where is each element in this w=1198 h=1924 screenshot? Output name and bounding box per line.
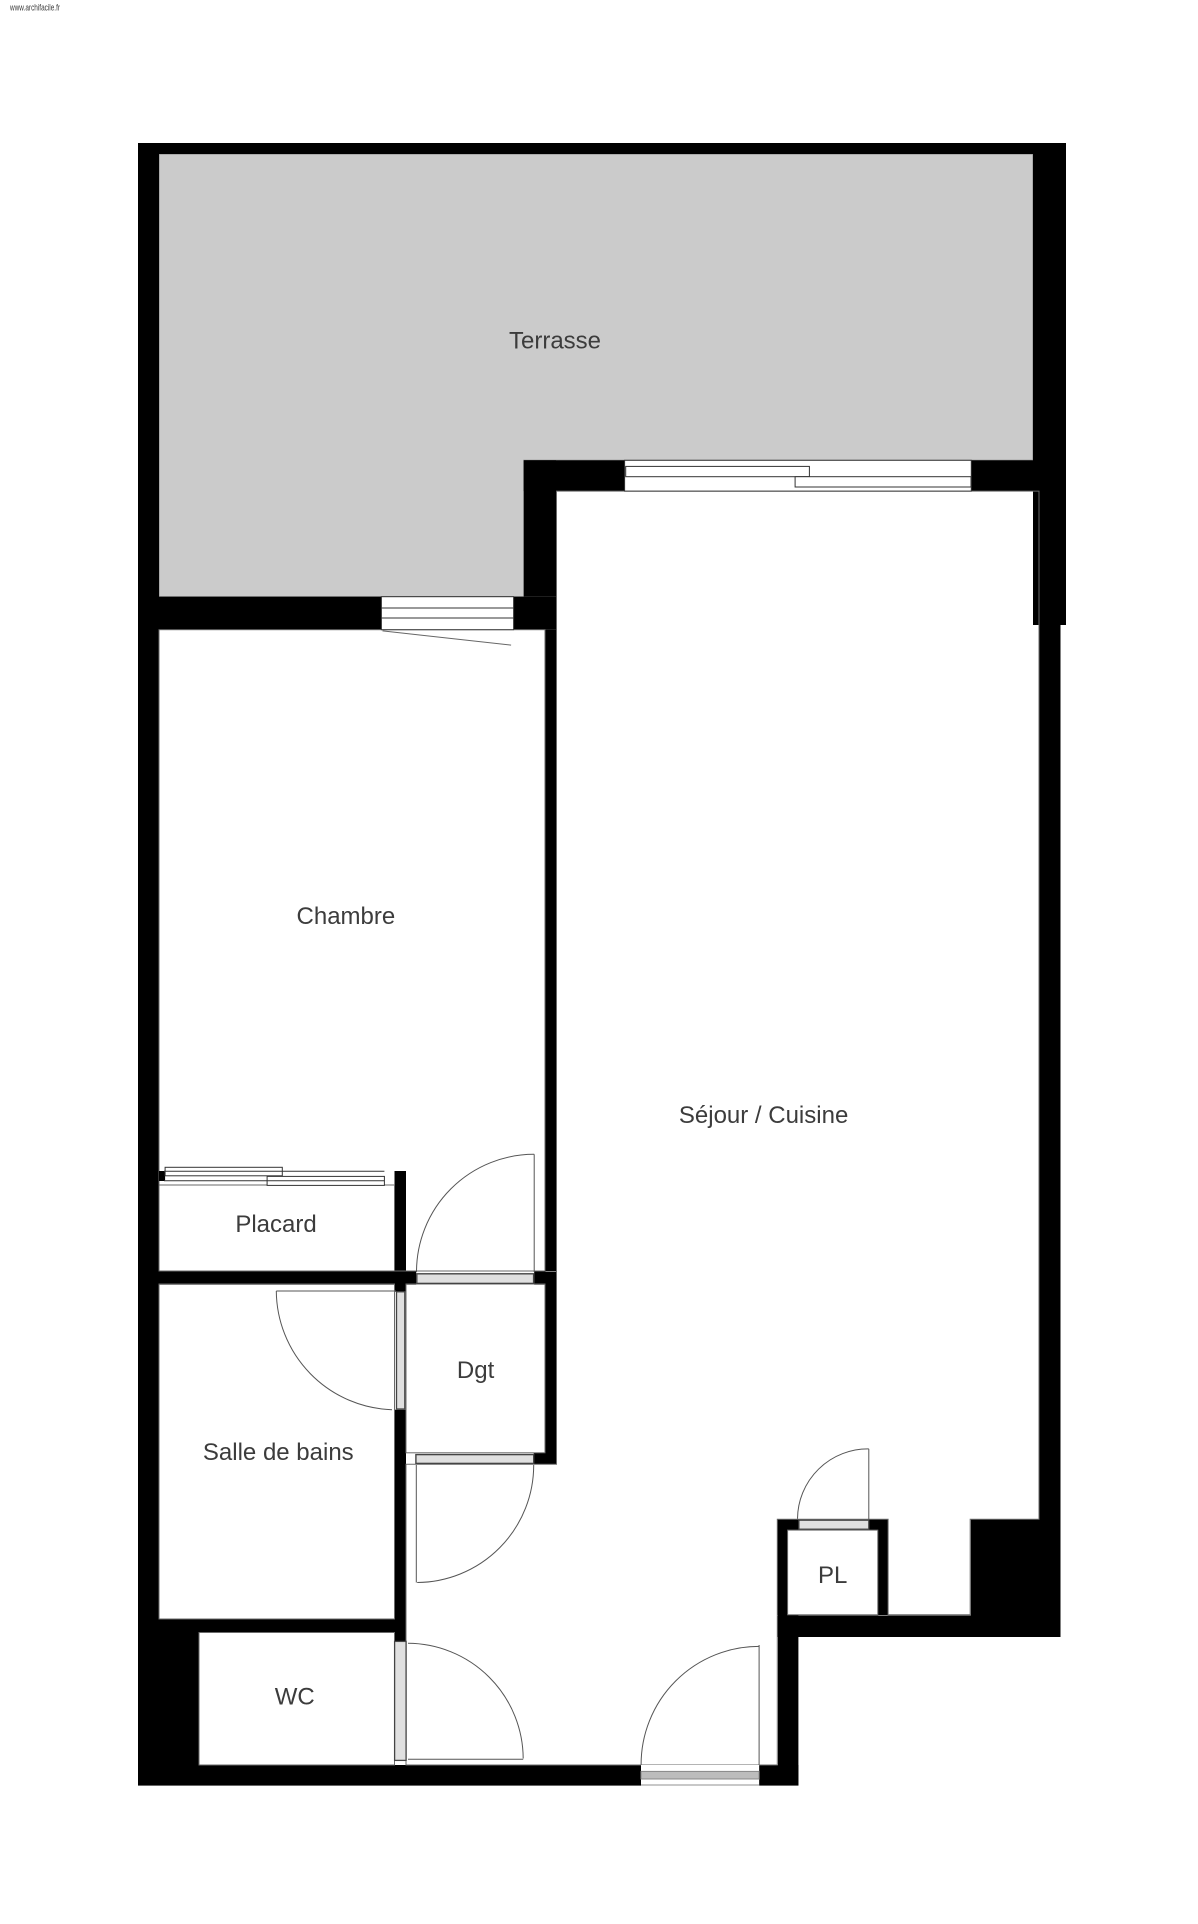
- svg-text:Placard: Placard: [235, 1211, 316, 1238]
- svg-text:www.archifacile.fr: www.archifacile.fr: [9, 3, 60, 13]
- svg-text:Séjour / Cuisine: Séjour / Cuisine: [679, 1102, 848, 1129]
- svg-text:WC: WC: [275, 1684, 315, 1711]
- svg-text:PL: PL: [818, 1562, 847, 1589]
- svg-text:Dgt: Dgt: [457, 1357, 495, 1384]
- svg-text:Chambre: Chambre: [297, 903, 396, 930]
- svg-text:Salle de bains: Salle de bains: [203, 1439, 354, 1466]
- svg-text:Terrasse: Terrasse: [509, 328, 601, 355]
